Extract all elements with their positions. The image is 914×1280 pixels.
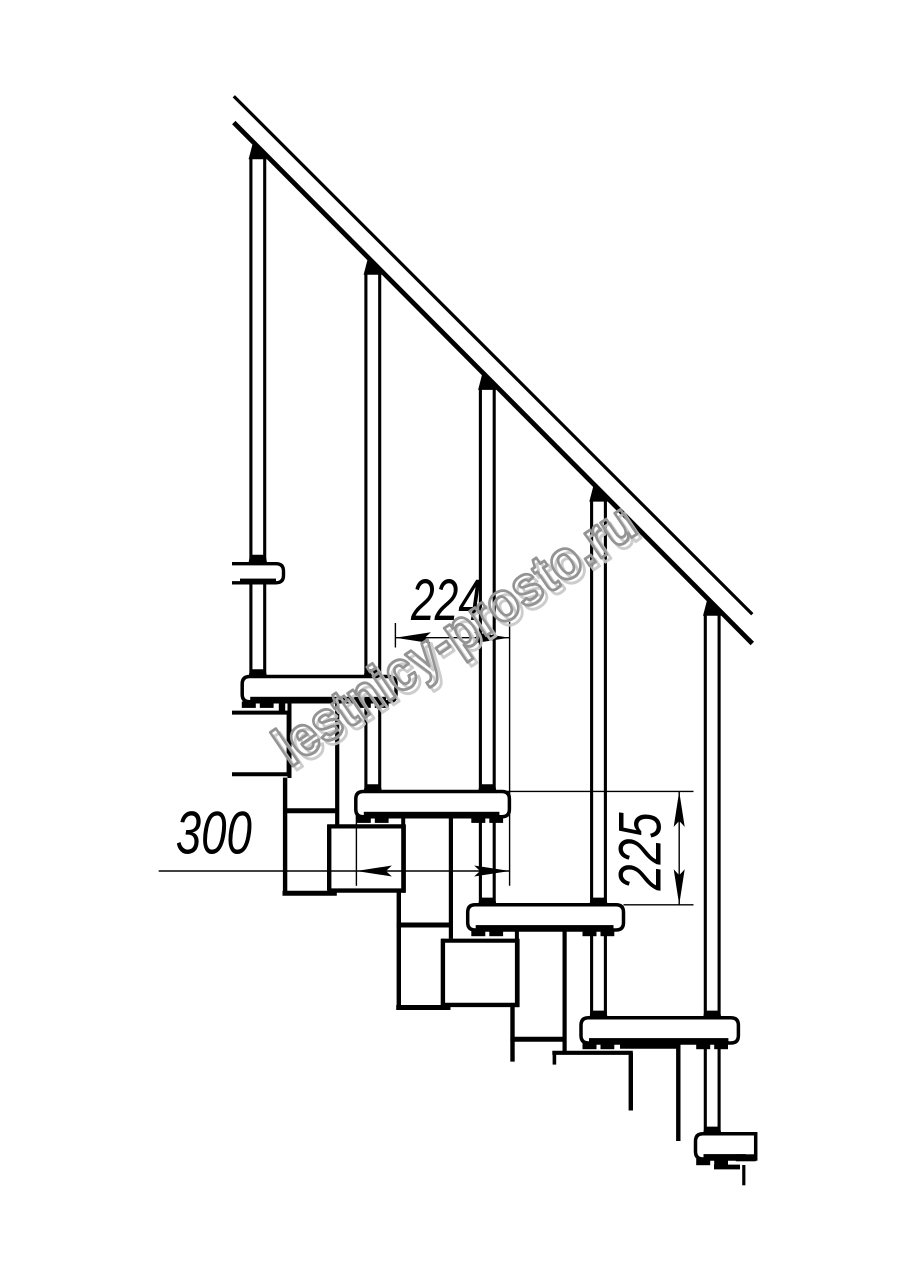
svg-text:225: 225: [607, 812, 674, 891]
svg-text:300: 300: [176, 800, 252, 867]
